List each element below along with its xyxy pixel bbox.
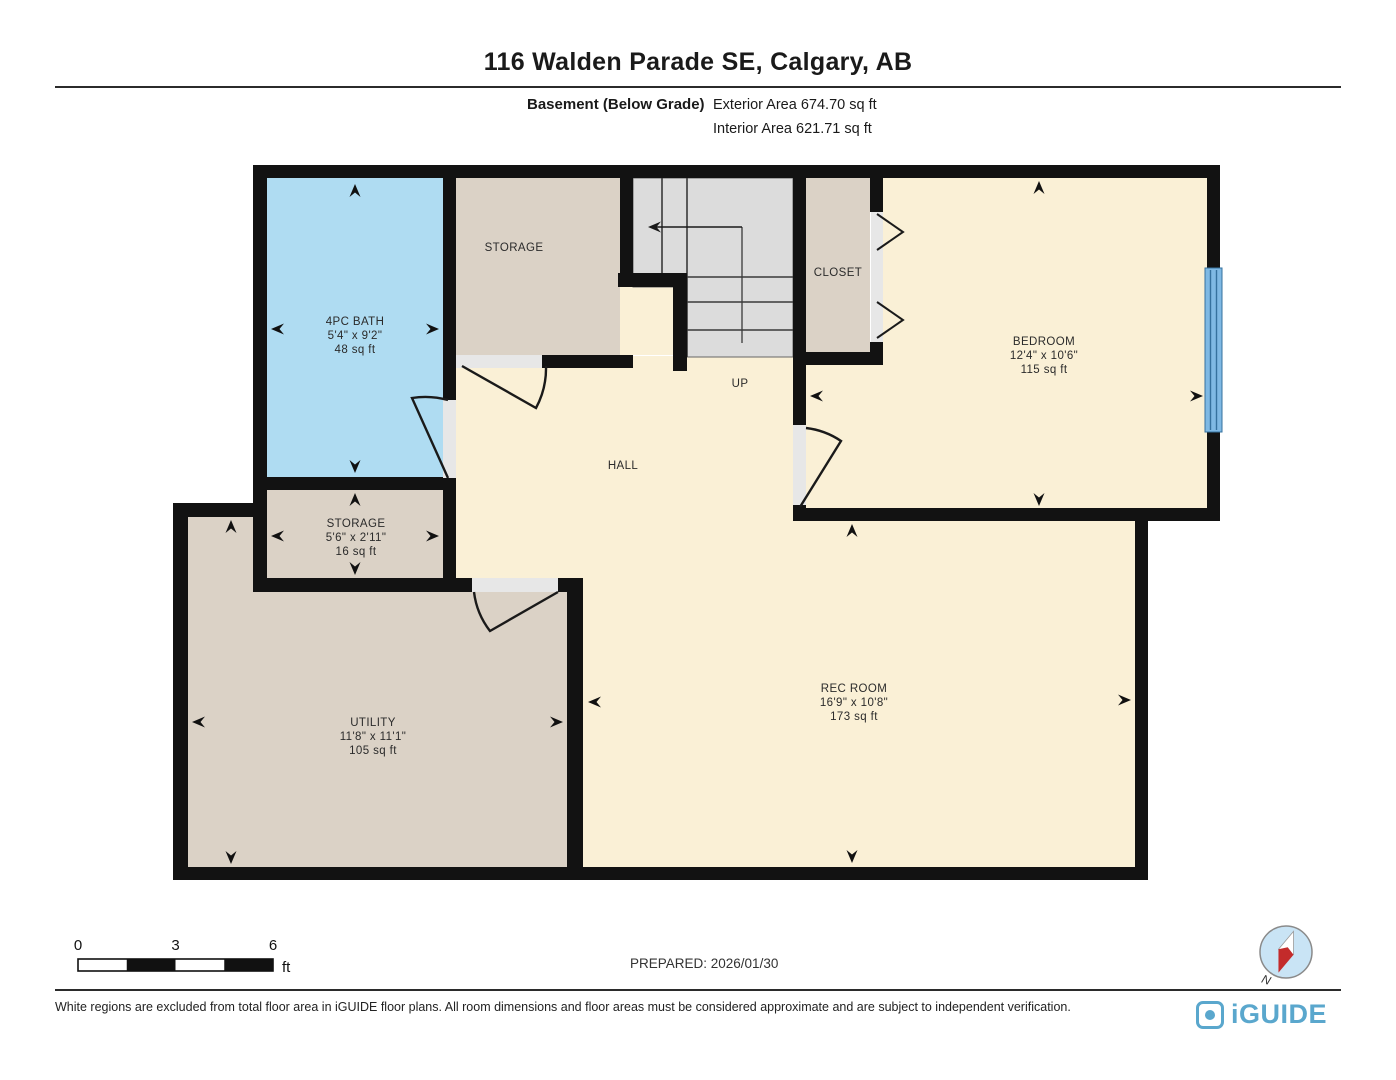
wall — [1207, 165, 1220, 268]
wall — [253, 578, 472, 592]
room-storage-top — [456, 178, 620, 355]
room-label: STORAGE — [327, 518, 386, 530]
bedroom-window — [1205, 268, 1222, 432]
closet-opening — [871, 212, 883, 342]
room-dims: 5'4" x 9'2" — [328, 330, 383, 342]
scale-bar: 0 3 6 ft — [74, 937, 291, 976]
scale-tick: 6 — [269, 937, 277, 954]
iguide-camera-icon — [1196, 1001, 1224, 1029]
room-label: CLOSET — [814, 267, 862, 279]
room-dims: 16'9" x 10'8" — [820, 697, 888, 709]
floor-plan-canvas: 4PC BATH 5'4" x 9'2" 48 sq ft STORAGE CL… — [0, 0, 1396, 1080]
wall — [443, 477, 456, 592]
wall — [870, 178, 883, 212]
window-glass — [1205, 268, 1222, 432]
wall — [567, 578, 583, 880]
hall-pocket — [620, 287, 673, 355]
room-area: 173 sq ft — [830, 711, 878, 723]
wall — [1135, 508, 1148, 880]
room-label: BEDROOM — [1013, 336, 1075, 348]
wall — [258, 165, 1220, 178]
wall — [795, 508, 1220, 521]
room-label: UTILITY — [350, 717, 396, 729]
prepared-date: PREPARED: 2026/01/30 — [630, 956, 778, 971]
room-dims: 12'4" x 10'6" — [1010, 350, 1078, 362]
room-area: 16 sq ft — [336, 546, 377, 558]
compass-north-label: N — [1260, 972, 1273, 988]
wall — [253, 165, 267, 592]
compass: N — [1260, 926, 1312, 988]
wall — [793, 505, 806, 521]
scale-bar-segment — [127, 959, 176, 971]
scale-tick: 0 — [74, 937, 82, 954]
room-bath — [267, 178, 443, 478]
door-threshold — [456, 355, 542, 368]
room-area: 115 sq ft — [1021, 364, 1068, 376]
room-label: STORAGE — [485, 242, 544, 254]
stairs-up-label: UP — [732, 378, 749, 390]
room-dims: 5'6" x 2'11" — [326, 532, 387, 544]
footer-divider — [55, 989, 1341, 991]
wall — [793, 165, 806, 425]
door-threshold — [793, 425, 806, 505]
wall — [443, 178, 456, 400]
disclaimer-text: White regions are excluded from total fl… — [55, 1000, 1095, 1014]
wall — [253, 477, 456, 490]
room-label: REC ROOM — [821, 683, 887, 695]
scale-bar-segment — [224, 959, 273, 971]
scale-unit: ft — [282, 959, 291, 976]
wall — [618, 273, 687, 287]
door-threshold — [472, 578, 558, 592]
wall — [793, 352, 883, 365]
wall — [620, 165, 633, 287]
scale-tick: 3 — [171, 937, 179, 954]
room-label: HALL — [608, 460, 639, 472]
room-label: 4PC BATH — [326, 316, 385, 328]
room-dims: 11'8" x 11'1" — [340, 731, 407, 743]
wall — [673, 287, 687, 371]
wall — [173, 867, 1148, 880]
wall — [1207, 432, 1220, 521]
iguide-logo: iGUIDE — [1196, 999, 1327, 1030]
wall — [542, 355, 633, 368]
room-closet — [806, 178, 870, 352]
door-threshold — [443, 400, 456, 478]
room-area: 105 sq ft — [349, 745, 397, 757]
iguide-wordmark: iGUIDE — [1231, 999, 1327, 1030]
room-area: 48 sq ft — [335, 344, 376, 356]
wall — [173, 503, 188, 880]
